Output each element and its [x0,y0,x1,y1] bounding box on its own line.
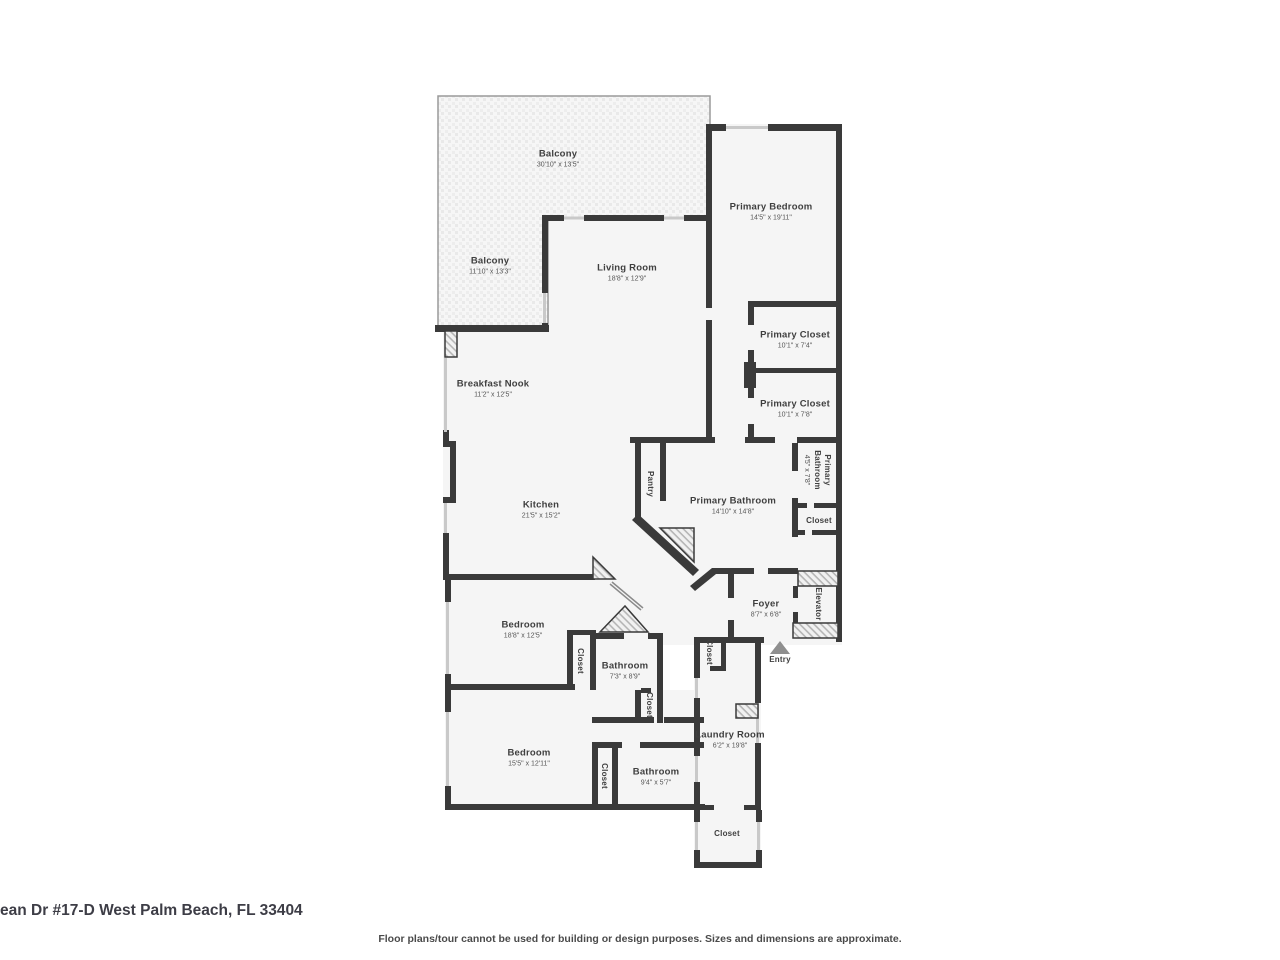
room-label-closet-primary: Closet [806,516,832,526]
room-label-closet-bottom-bed: Closet [599,763,609,789]
room-label-closet-mid-bedroom: Closet [575,648,585,674]
room-label-primary-bedroom: Primary Bedroom 14'5" x 19'11" [730,201,813,222]
room-label-primary-bathroom-2: Primary Bathroom 4'5" x 7'8" [802,445,832,495]
floorplan-drawing [0,0,1280,960]
room-label-laundry-room: Laundry Room 6'2" x 19'8" [695,729,764,750]
room-label-breakfast-nook: Breakfast Nook 11'2" x 12'5" [457,378,530,399]
floorplan-page: Balcony 30'10" x 13'5" Balcony 11'10" x … [0,0,1280,960]
room-label-closet-mid-bathroom: Closet [644,692,654,718]
room-label-closet-foyer: Closet [704,639,714,665]
room-label-balcony-top: Balcony 30'10" x 13'5" [537,148,579,169]
room-label-primary-closet-2: Primary Closet 10'1" x 7'8" [760,398,830,419]
room-label-bedroom-mid: Bedroom 18'8" x 12'5" [501,619,544,640]
room-label-living-room: Living Room 18'8" x 12'9" [597,262,657,283]
entry-label: Entry [769,655,790,665]
room-label-bedroom-bottom: Bedroom 15'5" x 12'11" [507,747,550,768]
room-label-foyer: Foyer 8'7" x 6'8" [751,598,782,619]
room-label-elevator: Elevator [813,587,823,620]
room-label-closet-bottom: Closet [714,829,740,839]
room-label-bathroom-bottom: Bathroom 9'4" x 5'7" [633,766,679,787]
room-label-balcony-left: Balcony 11'10" x 13'3" [469,255,511,276]
room-label-primary-bathroom: Primary Bathroom 14'10" x 14'8" [690,495,776,516]
room-label-kitchen: Kitchen 21'5" x 15'2" [522,499,560,520]
room-label-pantry: Pantry [645,471,655,497]
room-label-primary-closet-1: Primary Closet 10'1" x 7'4" [760,329,830,350]
room-label-bathroom-mid: Bathroom 7'3" x 8'9" [602,660,648,681]
disclaimer-text: Floor plans/tour cannot be used for buil… [0,933,1280,945]
property-address: ean Dr #17-D West Palm Beach, FL 33404 [0,902,303,920]
